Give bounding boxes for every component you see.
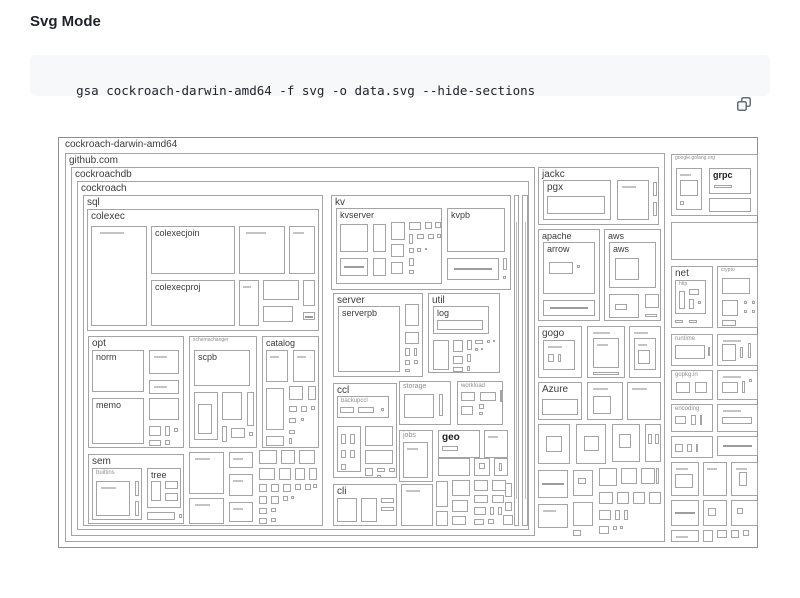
treemap-box (740, 347, 743, 358)
treemap-box (165, 481, 178, 489)
treemap-box (722, 278, 750, 294)
illegible-text-mark (454, 268, 492, 270)
treemap-node-label: workload (461, 383, 485, 390)
illegible-text-mark (233, 480, 243, 482)
treemap-node-label: storage (403, 383, 426, 391)
treemap-box (461, 392, 475, 401)
treemap-box (505, 502, 512, 511)
treemap-box (479, 404, 484, 409)
illegible-text-mark (632, 388, 647, 390)
treemap-box (391, 244, 404, 257)
treemap-box (617, 492, 629, 504)
treemap-node-label: kvserver (340, 210, 374, 220)
treemap-box (259, 508, 267, 514)
treemap-box (377, 475, 381, 478)
treemap-box (474, 519, 484, 525)
treemap-box (341, 450, 346, 458)
treemap-node-geo: geo (438, 430, 480, 458)
treemap-box (505, 483, 512, 497)
treemap-box (377, 468, 385, 472)
treemap-box (428, 234, 434, 239)
treemap-box (436, 481, 448, 507)
treemap-box (452, 500, 468, 512)
treemap-box (689, 289, 699, 295)
treemap-box (744, 310, 747, 313)
treemap-node-label: github.com (69, 155, 118, 167)
treemap-box (481, 348, 483, 350)
treemap-node-label: cockroach (81, 183, 127, 195)
treemap-box (474, 480, 488, 491)
treemap-box (671, 530, 699, 542)
treemap-node-label: Azure (542, 384, 568, 396)
treemap-box (340, 407, 354, 413)
treemap-box (409, 222, 421, 230)
treemap-box (467, 366, 470, 371)
treemap-node-label: arrow (547, 244, 570, 254)
treemap-node-label: norm (96, 352, 117, 362)
treemap-box (619, 434, 631, 448)
treemap-box (573, 502, 593, 526)
illegible-text-mark (488, 436, 498, 438)
illegible-text-mark (233, 458, 243, 460)
treemap-box (405, 332, 419, 344)
treemap-box (752, 310, 755, 313)
illegible-text-mark (723, 410, 741, 412)
treemap-box (259, 450, 277, 464)
treemap-box (653, 202, 657, 216)
treemap-node-label: log (437, 308, 449, 318)
illegible-text-mark (622, 186, 636, 188)
treemap-node-label: apache (542, 231, 572, 241)
treemap-box (301, 406, 307, 412)
treemap-box (498, 507, 502, 515)
treemap-box (452, 480, 470, 496)
treemap-box (538, 504, 568, 528)
treemap-node-label: tree (151, 470, 167, 480)
treemap-box (615, 510, 620, 520)
treemap-box (165, 493, 178, 501)
illegible-text-mark (723, 445, 753, 447)
treemap-box (689, 320, 697, 323)
treemap-box (503, 276, 506, 279)
treemap-box (522, 195, 528, 526)
treemap-node-label: backupccl (341, 398, 368, 405)
treemap-box (289, 406, 297, 412)
treemap-node-label: google.golang.org (675, 156, 715, 162)
treemap-box (617, 180, 649, 220)
treemap-node-label: jobs (403, 432, 416, 440)
treemap-box (633, 492, 645, 504)
treemap-node-label: runtime (675, 336, 695, 343)
treemap-node-label: cockroachdb (75, 169, 132, 181)
treemap-box (313, 484, 317, 488)
treemap-box (671, 500, 699, 526)
treemap-node-label: builtins (96, 470, 115, 477)
copy-button[interactable] (732, 62, 760, 88)
treemap-box (474, 507, 486, 515)
treemap-box (492, 480, 506, 491)
treemap-box (271, 508, 276, 512)
treemap-box (341, 464, 346, 470)
treemap-box (231, 428, 245, 438)
treemap-box (259, 496, 267, 504)
treemap-node-label: encoding (675, 406, 699, 413)
treemap-box (638, 350, 650, 364)
treemap-node-workload: workload (457, 381, 503, 425)
treemap-box (722, 344, 736, 361)
treemap-box (487, 340, 490, 343)
treemap-box (414, 348, 417, 356)
treemap-box (722, 300, 738, 316)
treemap-node-label: jackc (542, 169, 565, 181)
treemap-box (461, 406, 473, 415)
treemap-box (499, 463, 502, 471)
treemap-box (289, 386, 303, 400)
treemap-node-label: kvpb (451, 210, 470, 220)
treemap-node-label: memo (96, 400, 121, 410)
treemap-box (593, 396, 611, 414)
treemap-box (283, 484, 291, 492)
treemap-node-label: net (675, 268, 689, 280)
illegible-text-mark (305, 316, 313, 318)
treemap-node-label: sql (87, 197, 100, 209)
treemap-box (599, 526, 609, 534)
treemap-box (405, 360, 410, 365)
treemap-box (675, 345, 705, 359)
treemap-box (703, 530, 713, 542)
treemap-box (739, 472, 747, 486)
treemap-box (671, 222, 758, 260)
treemap-box (542, 399, 578, 415)
treemap-box (365, 468, 373, 476)
treemap-box (295, 484, 301, 490)
treemap-box (229, 452, 253, 468)
treemap-box (675, 444, 683, 452)
treemap-node-label: gopkg.in (675, 372, 698, 379)
illegible-text-mark (550, 307, 588, 309)
treemap-box (447, 258, 499, 280)
treemap-node-colexecjoin: colexecjoin (151, 226, 235, 274)
treemap-box (578, 478, 586, 484)
treemap-box (709, 198, 751, 212)
treemap-box (708, 508, 716, 516)
treemap-box (479, 412, 483, 415)
treemap-root-label: cockroach-darwin-amd64 (65, 139, 177, 150)
illegible-text-mark (675, 512, 695, 514)
treemap-box (289, 438, 292, 444)
treemap-box (479, 463, 485, 469)
illegible-text-mark (100, 232, 125, 234)
treemap-box (543, 300, 595, 316)
treemap-box (96, 481, 130, 516)
treemap-box (263, 306, 293, 322)
treemap-box (135, 481, 139, 496)
treemap-box (147, 512, 175, 520)
treemap-box (283, 496, 288, 501)
treemap-box (350, 434, 355, 444)
treemap-box (149, 380, 179, 394)
illegible-text-mark (593, 332, 610, 334)
treemap-box (698, 301, 701, 304)
treemap-box (546, 436, 562, 452)
treemap-box (289, 226, 315, 274)
illegible-text-mark (246, 232, 266, 234)
treemap-box (337, 498, 357, 522)
illegible-text-mark (548, 346, 562, 348)
treemap-node-serverpb: serverpb (338, 306, 400, 372)
treemap-box (373, 224, 386, 252)
treemap-box (425, 248, 427, 250)
treemap-node-memo: memo (92, 398, 144, 444)
treemap-svg: cockroach-darwin-amd64 github.comcockroa… (58, 137, 758, 548)
illegible-text-mark (676, 468, 688, 470)
illegible-text-mark (297, 356, 306, 358)
treemap-box (289, 430, 295, 434)
treemap-box (722, 382, 738, 393)
treemap-node-kvpb: kvpb (447, 208, 505, 252)
treemap-box (452, 516, 466, 525)
treemap-box (680, 201, 684, 205)
treemap-box (149, 350, 179, 374)
treemap-box (179, 514, 182, 518)
treemap-box (405, 348, 410, 356)
treemap-box (149, 426, 161, 436)
treemap-box (403, 442, 428, 478)
illegible-text-mark (195, 504, 210, 506)
treemap-box (311, 406, 315, 410)
treemap-box (480, 392, 496, 401)
illegible-text-mark (243, 286, 251, 288)
treemap-box (305, 484, 311, 490)
treemap-box (453, 367, 463, 372)
illegible-text-mark (676, 536, 688, 538)
treemap-box (558, 354, 561, 362)
illegible-text-mark (597, 344, 608, 346)
treemap-box (409, 258, 414, 266)
treemap-box (409, 270, 414, 274)
treemap-box (731, 500, 758, 526)
illegible-text-mark (525, 222, 526, 498)
treemap-node-label: geo (442, 432, 460, 444)
treemap-node-label: colexecjoin (155, 228, 200, 238)
treemap-box (467, 340, 472, 350)
treemap-node-scpb: scpb (194, 350, 250, 386)
treemap-node-label: scpb (198, 352, 217, 362)
treemap-box (695, 382, 707, 393)
illegible-text-mark (406, 490, 420, 492)
treemap-box (714, 185, 732, 188)
treemap-box (409, 248, 414, 253)
treemap-box (438, 458, 470, 476)
illegible-text-mark (593, 388, 609, 390)
treemap-box (679, 291, 685, 309)
treemap-box (700, 415, 702, 425)
treemap-box (401, 484, 433, 526)
treemap-box (731, 530, 739, 538)
treemap-box (259, 484, 267, 492)
treemap-box (391, 262, 403, 274)
treemap-box (748, 343, 751, 358)
treemap-box (381, 507, 394, 511)
treemap-box (641, 468, 655, 484)
treemap-box (577, 265, 580, 268)
treemap-node-label: cli (337, 486, 346, 498)
treemap-box (675, 474, 693, 488)
treemap-box (229, 502, 253, 522)
treemap-box (648, 434, 652, 444)
treemap-node-label: util (432, 295, 445, 307)
treemap-node-label: pgx (547, 182, 563, 194)
treemap-box (425, 222, 432, 229)
treemap-box (655, 434, 659, 444)
treemap-box (381, 408, 384, 411)
treemap-box (361, 498, 377, 522)
treemap-box (263, 280, 299, 300)
treemap-box (538, 470, 568, 498)
treemap-box (91, 226, 147, 326)
treemap-box (291, 496, 294, 499)
treemap-node-colexecproj: colexecproj (151, 280, 235, 326)
treemap-box (271, 496, 279, 504)
treemap-box (613, 526, 617, 530)
illegible-text-mark (543, 510, 556, 512)
treemap-box (503, 258, 507, 270)
treemap-box (752, 301, 755, 304)
treemap-box (435, 222, 441, 228)
illegible-text-mark (736, 468, 748, 470)
treemap-box (547, 196, 605, 214)
illegible-text-mark (154, 356, 167, 358)
illegible-text-mark (723, 376, 741, 378)
page: Svg Mode gsa cockroach-darwin-amd64 -f s… (0, 0, 800, 598)
treemap-box (308, 386, 316, 400)
treemap-box (599, 492, 613, 504)
treemap-box (229, 474, 253, 496)
treemap-box (299, 450, 315, 464)
treemap-box (266, 388, 284, 430)
treemap-box (584, 436, 599, 451)
treemap-box (404, 394, 434, 418)
treemap-box (303, 312, 315, 320)
treemap-node-label: http (679, 282, 687, 288)
treemap-box (293, 350, 315, 382)
treemap-box (271, 518, 276, 522)
treemap-box (433, 340, 449, 370)
treemap-node-crypto: crypto (717, 266, 758, 328)
treemap-box (749, 379, 752, 382)
treemap-box (222, 392, 242, 420)
treemap-box (271, 484, 279, 492)
illegible-text-mark (634, 332, 648, 334)
treemap-box (742, 381, 745, 393)
illegible-text-mark (407, 448, 418, 450)
treemap-node-grpc: grpc (709, 168, 751, 194)
treemap-box (350, 450, 355, 458)
treemap-box (301, 418, 304, 421)
treemap-box (442, 446, 458, 451)
treemap-box (358, 407, 374, 413)
treemap-box (717, 436, 758, 456)
treemap-box (266, 436, 284, 446)
treemap-box (436, 511, 448, 526)
treemap-box (389, 468, 395, 472)
treemap-box (696, 444, 698, 452)
treemap-box (627, 382, 661, 420)
treemap-box (259, 468, 275, 480)
treemap-node-label: colexecproj (155, 282, 201, 292)
treemap-box (149, 440, 161, 446)
treemap-node-label: colexec (91, 211, 125, 223)
illegible-text-mark (154, 386, 167, 388)
treemap-box (417, 234, 424, 239)
treemap-box (340, 224, 368, 252)
treemap-box (437, 320, 483, 330)
code-block: gsa cockroach-darwin-amd64 -f svg -o dat… (30, 55, 770, 96)
treemap-box (409, 234, 413, 244)
treemap-box (737, 508, 743, 514)
treemap-box (279, 468, 291, 480)
treemap-box (247, 392, 254, 426)
treemap-box (309, 468, 317, 480)
treemap-box (488, 519, 494, 524)
treemap-box (135, 501, 139, 516)
treemap-node-label: catalog (266, 338, 295, 348)
treemap-box (675, 416, 686, 424)
treemap-box (680, 180, 698, 196)
treemap-box (708, 347, 710, 356)
treemap-box (500, 390, 502, 402)
treemap-box (453, 356, 463, 364)
treemap-box (475, 348, 478, 351)
treemap-box (689, 299, 694, 309)
treemap-node-label: grpc (713, 170, 733, 180)
treemap-box (439, 394, 443, 416)
treemap-box (645, 314, 657, 317)
treemap-box (743, 530, 749, 536)
treemap-box (222, 426, 227, 442)
illegible-text-mark (680, 174, 691, 176)
treemap-box (484, 430, 508, 458)
treemap-box (189, 498, 224, 524)
treemap-box (649, 492, 661, 504)
treemap-box (405, 304, 419, 326)
treemap-node-label: server (337, 295, 365, 307)
treemap-box (687, 444, 692, 452)
treemap-box (656, 468, 659, 484)
treemap-node-label: kv (335, 197, 345, 209)
illegible-text-mark (516, 222, 517, 498)
treemap-box (645, 294, 659, 308)
treemap-box (303, 280, 315, 306)
treemap-box (391, 222, 405, 240)
treemap-box (621, 468, 637, 484)
treemap-box (417, 248, 421, 252)
treemap-node-label: schemachanger (193, 338, 229, 344)
treemap-box (620, 526, 623, 529)
treemap-node-label: gogo (542, 328, 564, 340)
treemap-box (503, 515, 513, 525)
treemap-box (365, 426, 393, 446)
treemap-box (165, 426, 170, 436)
treemap-box (615, 304, 627, 310)
treemap-box (703, 462, 727, 496)
illegible-text-mark (707, 468, 717, 470)
copy-icon (736, 96, 752, 112)
treemap-box (691, 415, 696, 425)
treemap-box (493, 340, 495, 342)
illegible-text-mark (542, 483, 563, 485)
treemap-node-label: crypto (721, 268, 735, 274)
